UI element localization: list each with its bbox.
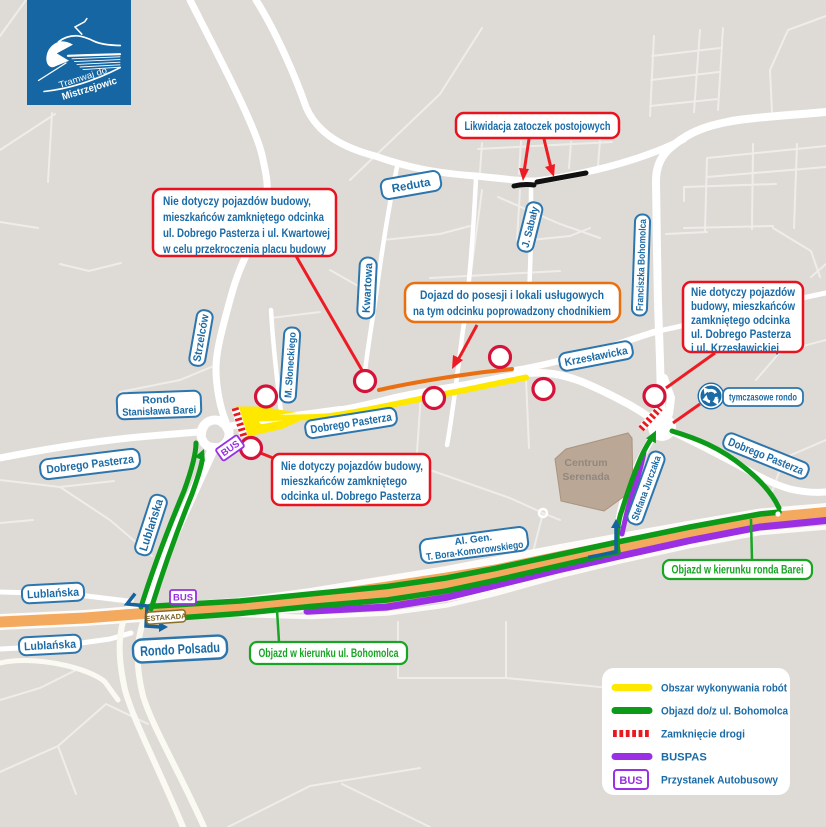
svg-text:odcinka ul. Dobrego Pasterza: odcinka ul. Dobrego Pasterza (281, 490, 421, 503)
svg-text:Centrum: Centrum (564, 457, 607, 469)
svg-text:Nie dotyczy pojazdów budowy,: Nie dotyczy pojazdów budowy, (163, 194, 311, 208)
svg-text:Nie dotyczy pojazdów budowy,: Nie dotyczy pojazdów budowy, (281, 460, 423, 473)
svg-text:Objazd w kierunku ul. Bohomolc: Objazd w kierunku ul. Bohomolca (259, 648, 399, 660)
svg-text:Likwidacja zatoczek postojowyc: Likwidacja zatoczek postojowych (465, 119, 611, 133)
svg-text:Nie dotyczy pojazdów: Nie dotyczy pojazdów (691, 286, 796, 299)
svg-text:Dojazd do posesji i lokali usł: Dojazd do posesji i lokali usługowych (420, 288, 604, 302)
svg-text:zamkniętego odcinka: zamkniętego odcinka (691, 314, 790, 327)
svg-text:Przystanek Autobusowy: Przystanek Autobusowy (661, 775, 779, 787)
svg-text:BUS: BUS (173, 593, 193, 604)
svg-text:w celu przekroczenia placu bud: w celu przekroczenia placu budowy (162, 242, 326, 256)
svg-text:ul. Dobrego Pasterza: ul. Dobrego Pasterza (691, 328, 791, 341)
svg-text:na tym odcinku poprowadzony ch: na tym odcinku poprowadzony chodnikiem (413, 304, 611, 318)
svg-text:Objazd do/z ul. Bohomolca: Objazd do/z ul. Bohomolca (661, 706, 789, 718)
svg-text:BUSPAS: BUSPAS (661, 752, 707, 764)
svg-text:ul. Dobrego Pasterza i ul. Kwa: ul. Dobrego Pasterza i ul. Kwartowej (163, 226, 330, 240)
svg-text:BUS: BUS (619, 775, 642, 787)
svg-text:mieszkańców zamkniętego odcink: mieszkańców zamkniętego odcinka (163, 210, 324, 224)
svg-text:budowy, mieszkańców: budowy, mieszkańców (691, 300, 796, 313)
svg-text:Objazd w kierunku ronda Barei: Objazd w kierunku ronda Barei (672, 565, 804, 577)
svg-text:Obszar wykonywania robót: Obszar wykonywania robót (661, 683, 787, 695)
svg-text:mieszkańców zamkniętego: mieszkańców zamkniętego (281, 475, 407, 488)
svg-text:tymczasowe rondo: tymczasowe rondo (729, 393, 797, 404)
svg-text:Zamknięcie drogi: Zamknięcie drogi (661, 729, 745, 741)
svg-text:Serenada: Serenada (562, 471, 609, 483)
svg-text:i ul. Krzesławickiej: i ul. Krzesławickiej (691, 342, 779, 355)
